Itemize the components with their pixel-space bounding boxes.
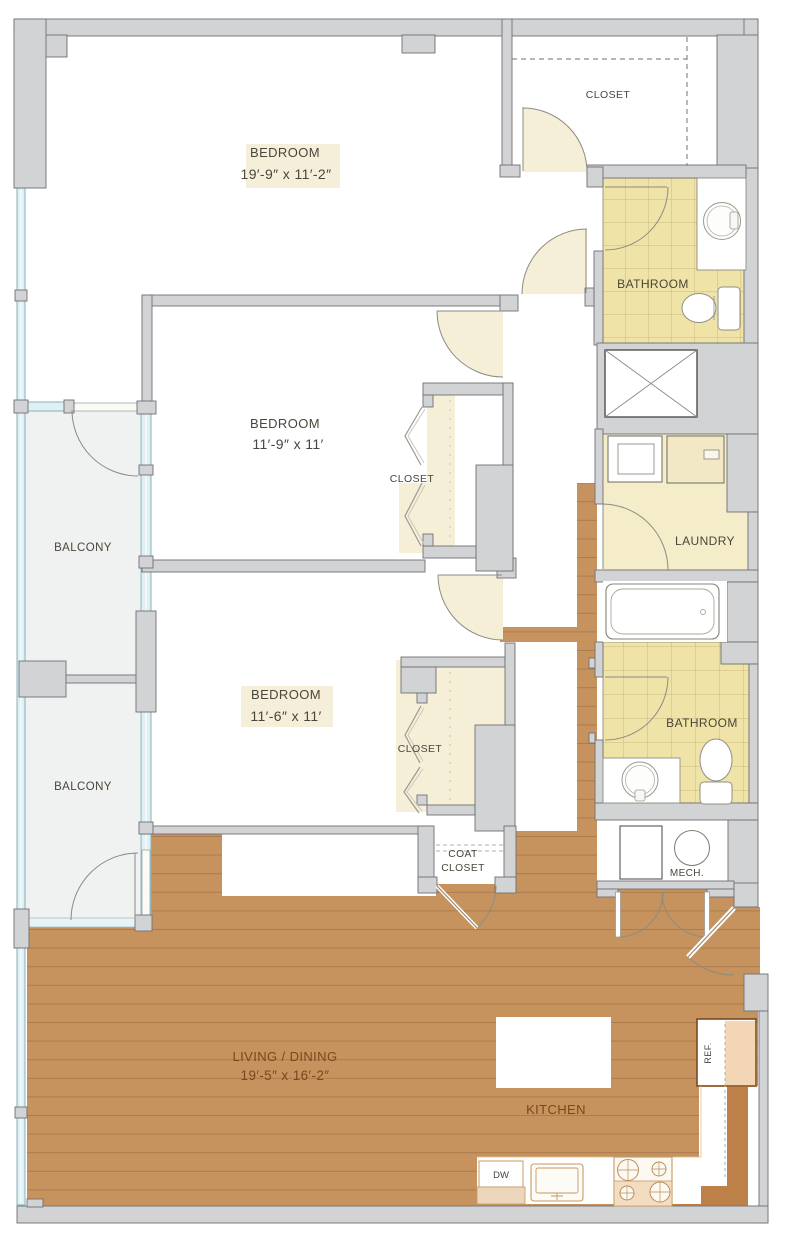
svg-text:BATHROOM: BATHROOM [666, 716, 738, 730]
svg-text:11′-6″ x 11′: 11′-6″ x 11′ [250, 708, 321, 724]
svg-text:COAT: COAT [448, 849, 478, 860]
svg-text:CLOSET: CLOSET [441, 863, 485, 874]
svg-text:CLOSET: CLOSET [398, 743, 443, 755]
svg-text:19′-9″ x 11′-2″: 19′-9″ x 11′-2″ [241, 166, 332, 182]
svg-text:DW: DW [493, 1170, 509, 1181]
svg-text:LAUNDRY: LAUNDRY [675, 534, 735, 548]
svg-text:BALCONY: BALCONY [54, 542, 112, 554]
svg-text:11′-9″ x 11′: 11′-9″ x 11′ [252, 436, 323, 452]
svg-text:BALCONY: BALCONY [54, 781, 112, 793]
svg-text:LIVING / DINING: LIVING / DINING [233, 1049, 338, 1064]
svg-text:BATHROOM: BATHROOM [617, 277, 689, 291]
svg-text:BEDROOM: BEDROOM [250, 145, 320, 160]
svg-text:KITCHEN: KITCHEN [526, 1102, 586, 1117]
svg-text:BEDROOM: BEDROOM [251, 687, 321, 702]
svg-text:BEDROOM: BEDROOM [250, 416, 320, 431]
svg-text:19′-5″ x 16′-2″: 19′-5″ x 16′-2″ [241, 1068, 330, 1083]
svg-text:CLOSET: CLOSET [390, 473, 435, 485]
svg-text:MECH.: MECH. [670, 868, 704, 879]
svg-text:REF.: REF. [703, 1042, 713, 1064]
svg-text:CLOSET: CLOSET [586, 89, 631, 101]
